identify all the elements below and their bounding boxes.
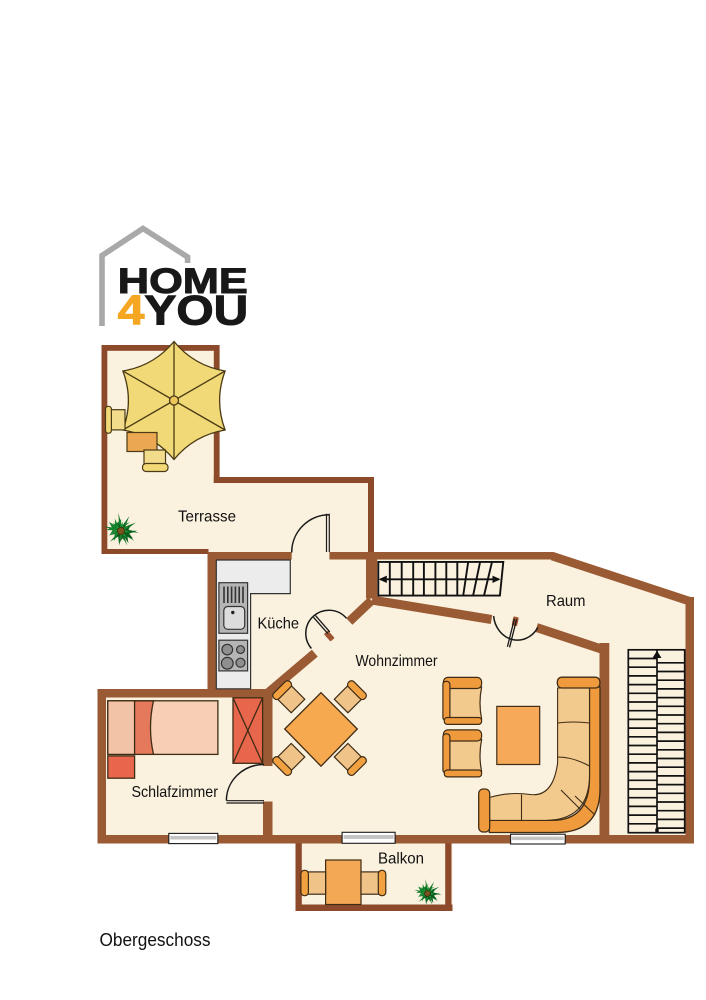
svg-text:Wohnzimmer: Wohnzimmer <box>356 653 439 670</box>
svg-text:Terrasse: Terrasse <box>178 509 236 526</box>
svg-text:Balkon: Balkon <box>378 851 424 868</box>
svg-text:4YOU: 4YOU <box>118 287 249 334</box>
svg-text:Raum: Raum <box>546 593 586 610</box>
svg-text:Küche: Küche <box>258 616 300 633</box>
svg-text:Obergeschoss: Obergeschoss <box>100 930 211 950</box>
svg-text:Schlafzimmer: Schlafzimmer <box>132 784 219 801</box>
